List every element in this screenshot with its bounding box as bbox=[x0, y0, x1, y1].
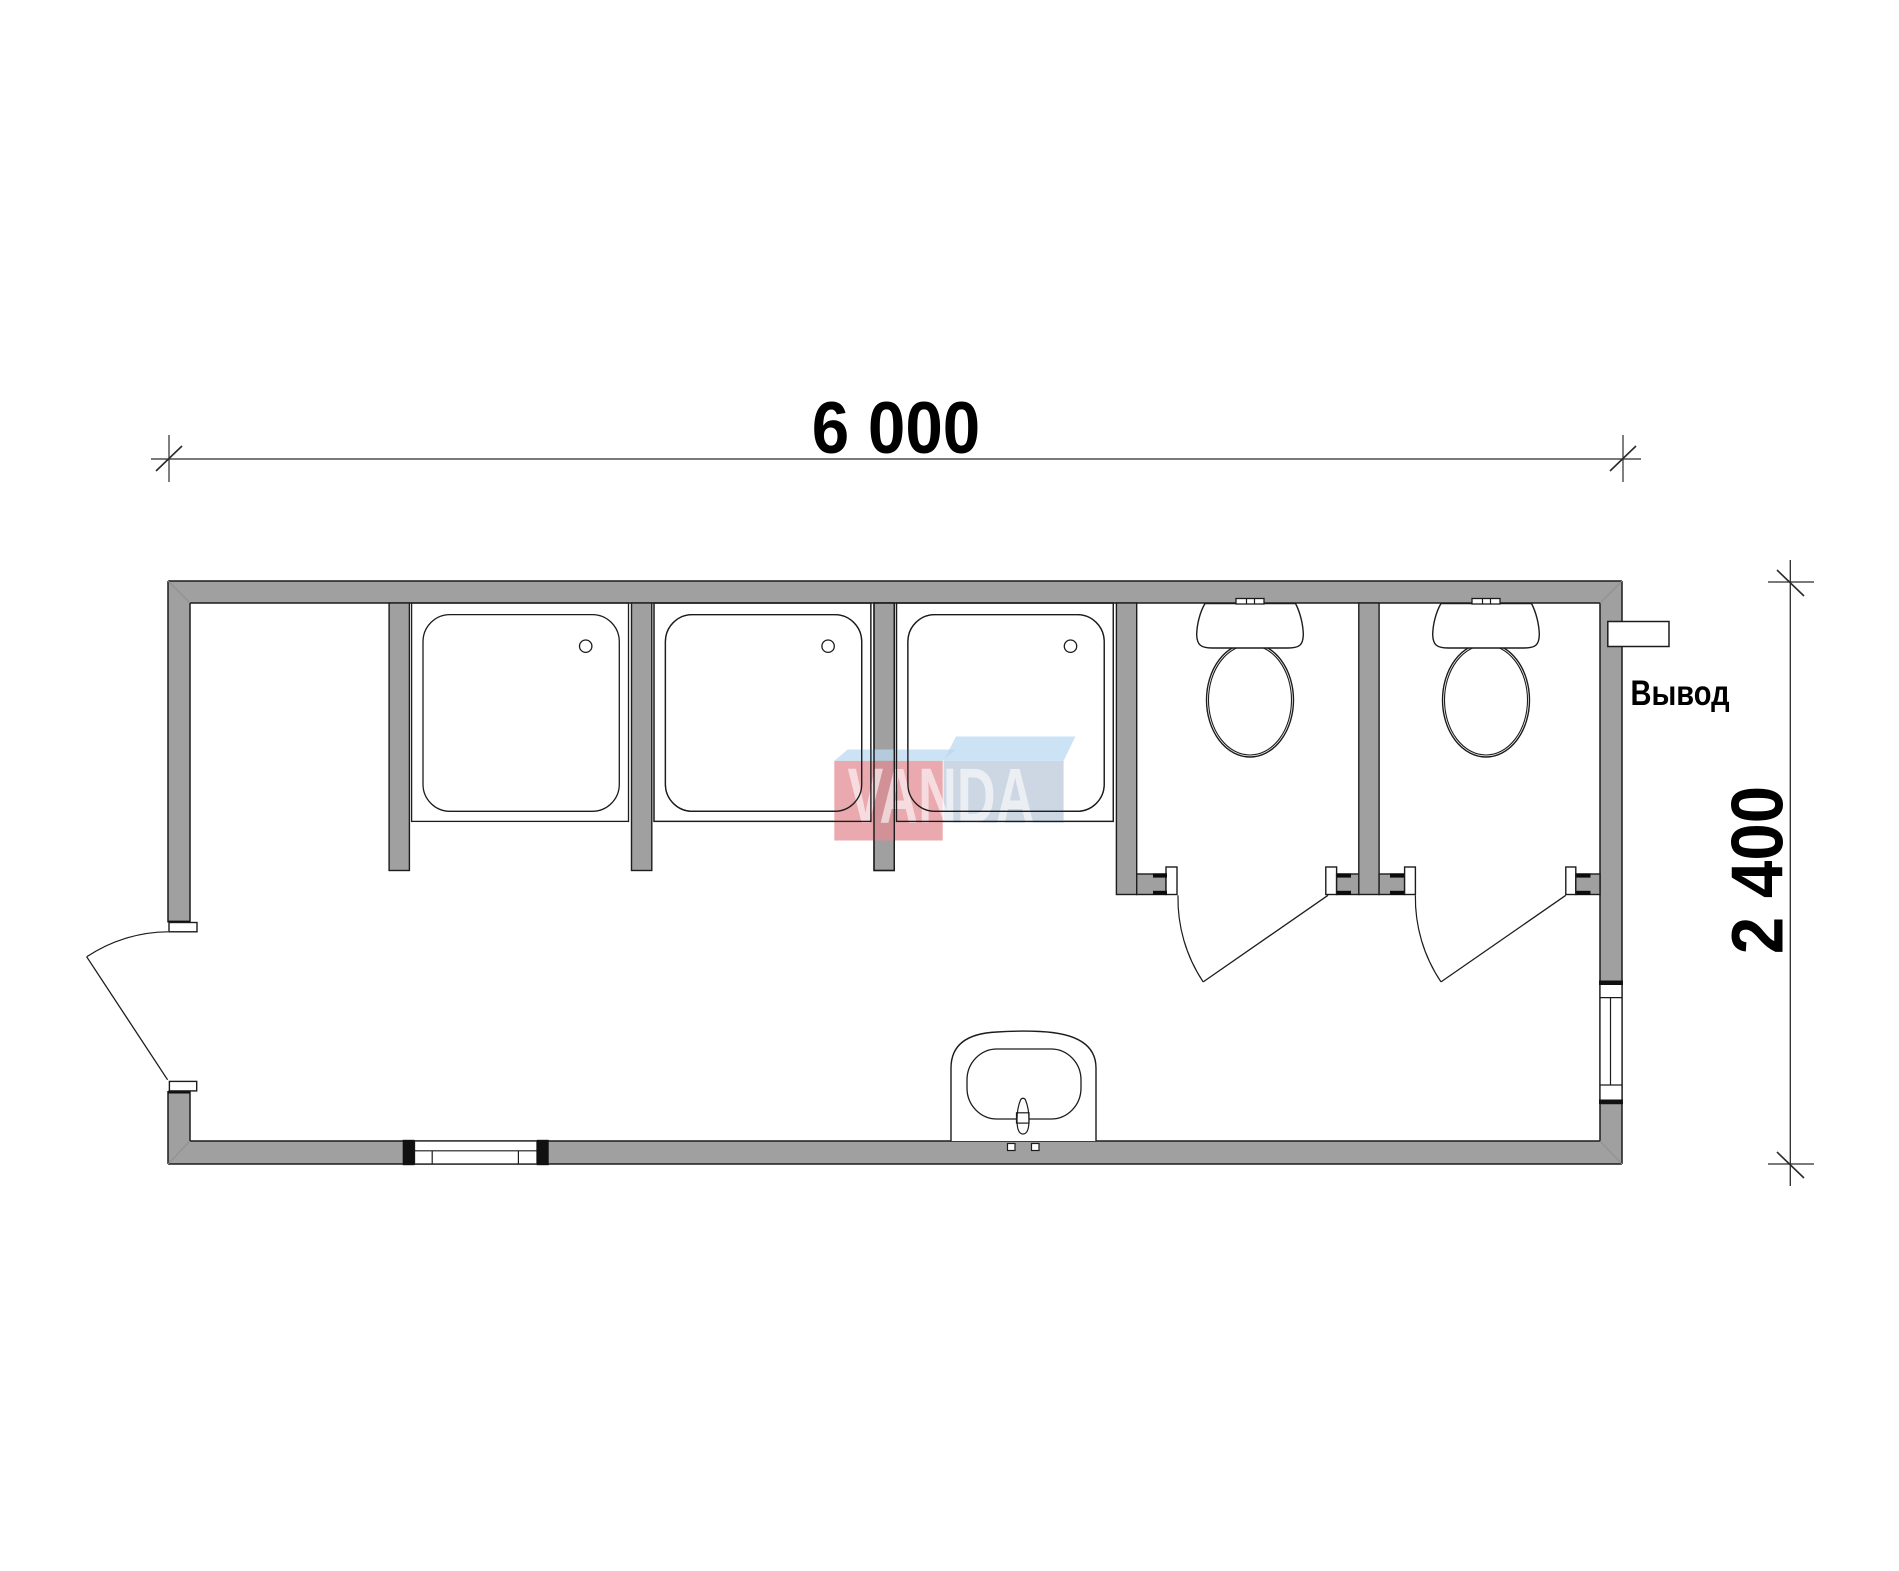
svg-text:Вывод: Вывод bbox=[1631, 673, 1730, 712]
svg-text:6 000: 6 000 bbox=[812, 386, 981, 468]
svg-text:VANDA: VANDA bbox=[848, 752, 1035, 840]
svg-text:2 400: 2 400 bbox=[1716, 786, 1798, 955]
